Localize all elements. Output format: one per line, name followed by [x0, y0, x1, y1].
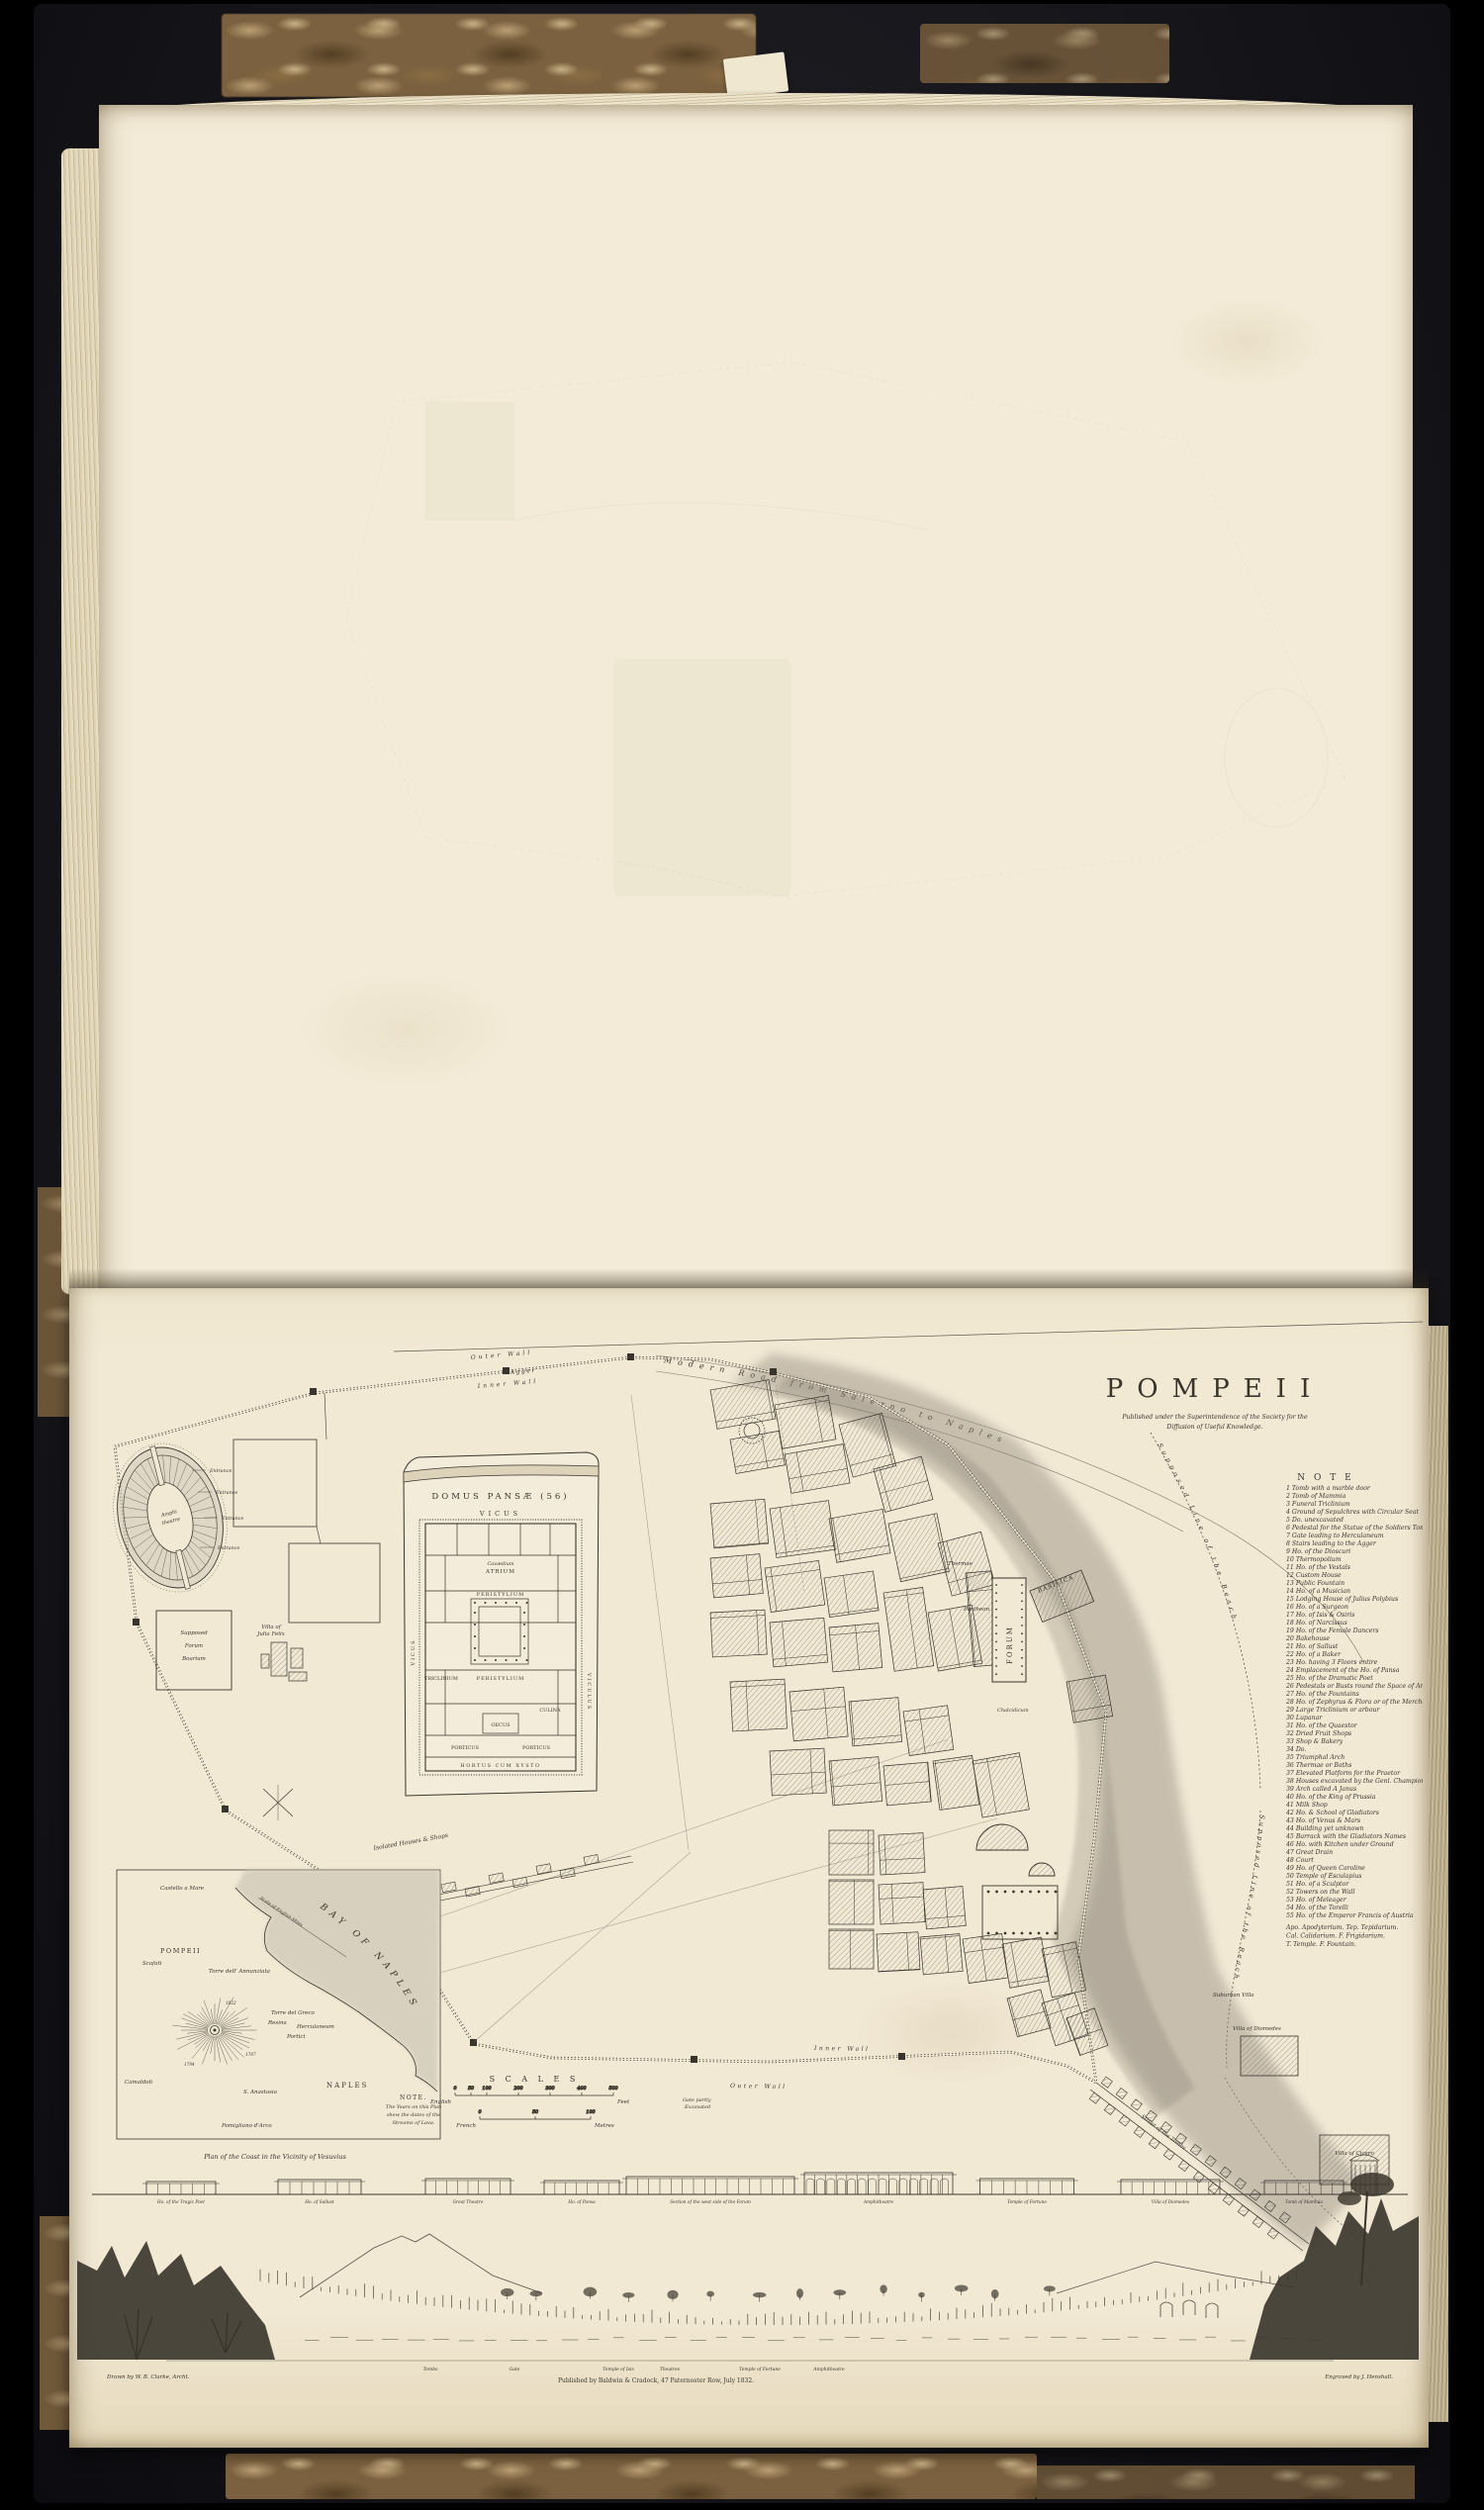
svg-text:Scafati: Scafati	[142, 1961, 162, 1967]
theatres	[976, 1824, 1058, 1939]
svg-text:Feet: Feet	[616, 2099, 630, 2105]
note-item: 4 Ground of Sepulchres with Circular Sea…	[1285, 1509, 1419, 1516]
city-block	[730, 1431, 785, 1473]
svg-text:ATRIUM: ATRIUM	[485, 1569, 515, 1575]
svg-text:Outer Wall: Outer Wall	[471, 1349, 533, 1361]
svg-text:Portici: Portici	[286, 2034, 305, 2040]
photographed-atlas-scene: { "colors":{"background":"#000000","cove…	[0, 0, 1484, 2510]
svg-text:VICUS: VICUS	[411, 1638, 417, 1666]
city-block	[1134, 2126, 1145, 2137]
svg-text:Resina: Resina	[267, 2020, 287, 2026]
note-item: 8 Stairs leading to the Agger	[1286, 1540, 1377, 1547]
credit-left: Drawn by W. B. Clarke, Archt.	[106, 2374, 190, 2380]
svg-text:CULINA: CULINA	[539, 1708, 561, 1714]
scales-block: S C A L E S 050100200300400500 English F…	[429, 2075, 630, 2129]
city-block	[441, 1882, 456, 1893]
entrance-label: Entrance	[209, 1468, 232, 1474]
panorama-label: Tombs	[423, 2367, 439, 2372]
vesuvius-silhouette	[300, 2234, 542, 2297]
city-block	[1007, 1990, 1051, 2037]
note-list: 1 Tomb with a marble door2 Tomb of Mammi…	[1285, 1485, 1423, 1948]
scale-tick: 100	[482, 2086, 491, 2092]
panorama-labels: TombsGateTemple of IsisTheatresTemple of…	[423, 2367, 845, 2372]
note-item: 30 Lupanar	[1286, 1715, 1323, 1721]
panorama-label: Theatres	[660, 2367, 681, 2372]
scale-tick: 400	[576, 2086, 586, 2092]
scale-tick: 0	[478, 2109, 481, 2115]
city-block	[879, 1883, 925, 1924]
city-block	[489, 1873, 504, 1884]
panorama-label: Amphitheatre	[812, 2367, 845, 2372]
svg-text:Torre del Greco: Torre del Greco	[271, 2010, 315, 2016]
note-item: 6 Pedestal for the Statue of the Soldier…	[1286, 1525, 1423, 1532]
note-item: 10 Thermopolium	[1286, 1556, 1342, 1563]
svg-text:S. Anastasia: S. Anastasia	[243, 2090, 277, 2095]
city-block	[829, 1929, 874, 1969]
svg-text:Boarium: Boarium	[181, 1656, 206, 1662]
note-item: 39 Arch called A Janus	[1286, 1786, 1356, 1793]
city-block	[789, 1687, 848, 1741]
entrance-label: Entrance	[217, 1545, 239, 1551]
city-block	[824, 1571, 879, 1618]
svg-text:Forum: Forum	[184, 1643, 203, 1649]
city-block	[1267, 2228, 1278, 2239]
note-item: 1 Tomb with a marble door	[1286, 1485, 1371, 1492]
svg-text:Agger: Agger	[510, 1367, 536, 1376]
plate-subtitle-2: Diffusion of Useful Knowledge.	[1165, 1424, 1262, 1431]
svg-text:Metres: Metres	[594, 2123, 614, 2129]
svg-text:Herculaneum: Herculaneum	[296, 2024, 334, 2030]
svg-text:Chalcidicum: Chalcidicum	[997, 1708, 1029, 1714]
under-pages-right-edge	[1429, 1326, 1448, 2422]
note-item: 7 Gate leading to Herculaneum	[1286, 1533, 1384, 1539]
marbled-board-top-right	[920, 24, 1169, 83]
french-scale-ticks: 050100	[478, 2109, 595, 2119]
note-item: 9 Ho. of the Dioscuri	[1286, 1548, 1350, 1555]
entrance-label: Entrance	[221, 1516, 243, 1522]
note-item: 12 Custom House	[1286, 1572, 1342, 1579]
scale-tick: 0	[453, 2086, 456, 2092]
note-item: 36 Thermae or Baths	[1286, 1762, 1351, 1769]
note-item: 46 Ho. with Kitchen under Ground	[1285, 1841, 1394, 1848]
note-item: 33 Shop & Bakery	[1286, 1738, 1344, 1745]
city-block	[933, 1755, 979, 1810]
city-block	[1208, 2183, 1219, 2193]
note-item: 2 Tomb of Mammia	[1285, 1493, 1346, 1500]
note-item: 35 Triumphal Arch	[1286, 1754, 1345, 1761]
svg-text:Excavated: Excavated	[684, 2104, 710, 2110]
city-block	[1101, 2077, 1112, 2088]
note-item: 15 Lodging House of Julius Polybius	[1286, 1596, 1398, 1603]
note-item: 29 Large Triclinium or arbour	[1285, 1707, 1380, 1714]
note-item: 37 Elevated Platform for the Praetor	[1286, 1770, 1401, 1777]
blank-verso-page	[99, 105, 1413, 1294]
city-block	[1223, 2194, 1234, 2205]
show-through-ghost	[99, 105, 1413, 1294]
note-item: 49 Ho. of Queen Caroline	[1285, 1865, 1365, 1872]
note-item: 53 Ho. of Meleager	[1286, 1897, 1347, 1904]
plate-title: POMPEII	[1106, 1374, 1324, 1404]
note-item: 17 Ho. of Isis & Osiris	[1286, 1612, 1354, 1619]
marbled-board-top	[222, 14, 756, 97]
lava-year: 1767	[245, 2052, 256, 2057]
scale-tick: 500	[608, 2086, 617, 2092]
city-block	[584, 1855, 599, 1866]
note-item: 23 Ho. having 3 Floors entire	[1285, 1659, 1378, 1666]
city-block	[1089, 2092, 1100, 2103]
svg-text:Supposed: Supposed	[180, 1630, 208, 1636]
city-block	[973, 1753, 1029, 1817]
note-item: 47 Great Drain	[1285, 1849, 1333, 1856]
note-abbreviation: T. Temple. F. Fountain.	[1286, 1941, 1356, 1948]
svg-text:French: French	[455, 2123, 476, 2129]
svg-text:TRICLINIUM: TRICLINIUM	[424, 1676, 458, 1682]
note-item: 11 Ho. of the Vestals	[1286, 1564, 1350, 1571]
forum-boarium: Supposed Forum Boarium	[156, 1611, 232, 1690]
scales-header: S C A L E S	[490, 2075, 580, 2084]
city-block	[923, 1887, 966, 1929]
city-block	[765, 1560, 825, 1612]
note-item: 50 Temple of Esculapius	[1286, 1873, 1361, 1880]
note-item: 21 Ho. of Sallust	[1285, 1643, 1339, 1650]
city-block	[710, 1554, 763, 1598]
city-block	[829, 1509, 890, 1562]
note-item: 38 Houses excavated by the Genl. Champio…	[1286, 1778, 1423, 1785]
note-item: 43 Ho. of Venus & Mars	[1285, 1817, 1360, 1824]
svg-text:Isolated Houses & Shops: Isolated Houses & Shops	[372, 1832, 448, 1852]
svg-text:Suburban Villa: Suburban Villa	[1213, 1993, 1254, 1999]
title-block: POMPEII Published under the Superintende…	[1106, 1374, 1324, 1431]
svg-text:VICULUS: VICULUS	[586, 1672, 592, 1711]
city-block	[877, 1932, 920, 1972]
note-item: 14 Ho. of a Musician	[1286, 1588, 1350, 1595]
note-abbreviation: Apo. Apodyterium. Tep. Tepidarium.	[1285, 1924, 1398, 1931]
city-block	[920, 1934, 963, 1975]
note-item: 22 Ho. of a Baker	[1285, 1651, 1342, 1658]
svg-text:Pantheon: Pantheon	[963, 1607, 990, 1613]
city-block	[1163, 2149, 1174, 2160]
city-block	[1067, 1675, 1113, 1722]
svg-text:PERISTYLIUM: PERISTYLIUM	[477, 1676, 524, 1682]
svg-text:Inner Wall: Inner Wall	[477, 1378, 539, 1390]
elevation-caption: Villa of Diomedes	[1152, 2200, 1190, 2205]
elevation-caption: Ho. of Sallust	[304, 2200, 334, 2205]
bay-inset: BAY OF NAPLES Castello a Mare POMPEII Sc…	[117, 1870, 441, 2161]
city-block	[1119, 2115, 1130, 2126]
city-block	[1193, 2172, 1204, 2183]
city-block	[963, 1933, 1008, 1983]
note-item: 48 Court	[1285, 1857, 1314, 1864]
note-item: 41 Milk Shop	[1285, 1802, 1328, 1809]
svg-text:Camaldoli: Camaldoli	[125, 2080, 152, 2086]
beach-line-label-2: Supposed Line of the Beach	[1232, 1814, 1266, 1982]
elevation-caption: Temple of Fortune	[1007, 2200, 1047, 2205]
svg-text:NOTE.: NOTE.	[400, 2094, 427, 2101]
svg-text:Pomigliano d'Arco: Pomigliano d'Arco	[221, 2123, 272, 2129]
note-item: 25 Ho. of the Dramatic Poet	[1285, 1675, 1373, 1682]
city-block	[1238, 2205, 1249, 2216]
note-item: 52 Towers on the Wall	[1286, 1889, 1355, 1896]
domus-pansae-inset: DOMUS PANSÆ (56) VICUS ATRIUM Cavædium P…	[404, 1452, 599, 1796]
elevation-caption: Ho. of the Tragic Poet	[156, 2200, 205, 2205]
city-block	[1131, 2099, 1142, 2110]
city-block	[770, 1618, 828, 1667]
bay-caption: Plan of the Coast in the Vicinity of Ves…	[203, 2153, 346, 2161]
entrance-label: Entrance	[215, 1490, 237, 1496]
note-item: 42 Ho. & School of Gladiators	[1285, 1810, 1379, 1816]
svg-text:PORTICUS: PORTICUS	[522, 1745, 550, 1751]
panorama-label: Temple of Isis	[603, 2367, 634, 2372]
svg-text:FORUM: FORUM	[1006, 1626, 1014, 1664]
svg-text:Streams of Lava.: Streams of Lava.	[393, 2120, 435, 2126]
svg-text:OECUS: OECUS	[491, 1722, 510, 1728]
svg-text:Julia Felix: Julia Felix	[256, 1631, 286, 1637]
city-block	[465, 1887, 480, 1898]
scale-tick: 300	[545, 2086, 554, 2092]
city-block	[770, 1501, 835, 1558]
imprint: Published by Baldwin & Cradock, 47 Pater…	[558, 2377, 754, 2384]
note-item: 40 Ho. of the King of Prussia	[1285, 1794, 1376, 1801]
svg-text:Outer Wall: Outer Wall	[730, 2083, 788, 2091]
city-block	[829, 1757, 882, 1806]
pompeii-map-plate: POMPEII Published under the Superintende…	[77, 1296, 1423, 2444]
note-item: 13 Public Fountain	[1286, 1580, 1345, 1587]
svg-text:Thermae: Thermae	[948, 1561, 974, 1567]
svg-text:DOMUS PANSÆ (56): DOMUS PANSÆ (56)	[431, 1491, 569, 1502]
note-item: 19 Ho. of the Female Dancers	[1286, 1627, 1379, 1634]
city-block	[903, 1706, 954, 1756]
note-abbreviation: Cal. Calidarium. F. Frigidarium.	[1286, 1933, 1385, 1940]
city-block	[829, 1880, 874, 1924]
note-item: 34 Do.	[1286, 1746, 1306, 1753]
city-block	[1252, 2216, 1263, 2227]
scale-tick: 50	[532, 2109, 538, 2115]
villa-julia-felix: Villa of Julia Felix	[256, 1625, 307, 1681]
note-item: 28 Ho. of Zephyrus & Flora or of the Mer…	[1285, 1699, 1423, 1706]
note-item: 3 Funeral Triclinium	[1286, 1501, 1350, 1508]
paper-scrap	[723, 51, 788, 98]
svg-text:Cavædium: Cavædium	[487, 1561, 513, 1567]
panorama-label: Gate	[510, 2367, 520, 2372]
svg-text:shew the dates of the: shew the dates of the	[387, 2112, 440, 2118]
svg-text:Torre dell' Annunziata: Torre dell' Annunziata	[209, 1969, 270, 1975]
note-item: 27 Ho. of the Fountains	[1285, 1691, 1359, 1698]
city-block	[775, 1395, 836, 1448]
note-item: 55 Ho. of the Emperor Francis of Austria	[1286, 1912, 1414, 1919]
marbled-board-bottom	[226, 2454, 1037, 2499]
city-block	[1178, 2160, 1189, 2171]
note-item: 32 Dried Fruit Shops	[1286, 1730, 1351, 1737]
elevation-caption: Great Theatre	[453, 2200, 484, 2205]
scale-tick: 100	[586, 2109, 595, 2115]
elevation-facade	[626, 2177, 794, 2194]
city-block	[512, 1877, 527, 1888]
city-block	[1002, 1937, 1049, 1988]
marbled-board-bottom-right	[1037, 2465, 1415, 2499]
city-block	[1149, 2138, 1159, 2149]
lava-year: 1794	[184, 2062, 195, 2067]
city-block	[829, 1830, 874, 1875]
foreground-left	[77, 2241, 275, 2360]
note-header: N O T E	[1297, 1473, 1353, 1483]
note-item: 24 Emplacement of the Ho. of Pansa	[1285, 1667, 1400, 1674]
note-block: N O T E 1 Tomb with a marble door2 Tomb …	[1285, 1473, 1423, 1948]
svg-text:VICUS: VICUS	[479, 1510, 521, 1518]
svg-text:Villa of: Villa of	[261, 1625, 281, 1630]
svg-text:PERISTYLIUM: PERISTYLIUM	[477, 1592, 524, 1598]
note-item: 44 Building yet unknown	[1285, 1825, 1364, 1832]
city-block	[849, 1698, 902, 1746]
city-block	[883, 1587, 934, 1671]
city-block	[883, 1762, 931, 1806]
credit-right: Engraved by J. Henshall.	[1324, 2374, 1393, 2380]
page-stack-left-edge	[61, 148, 103, 1294]
elevation-caption: Section of the west side of the Forum	[670, 2200, 751, 2205]
note-item: 31 Ho. of the Quaestor	[1286, 1722, 1358, 1729]
svg-text:HORTUS CUM XYSTO: HORTUS CUM XYSTO	[460, 1763, 540, 1769]
svg-text:POMPEII: POMPEII	[160, 1947, 201, 1955]
elevation-captions: Ho. of the Tragic PoetHo. of SallustGrea…	[156, 2200, 1323, 2205]
svg-text:Gate partly: Gate partly	[683, 2097, 711, 2103]
note-item: 20 Bakehouse	[1285, 1635, 1330, 1642]
elevation-caption: Amphitheatre	[863, 2200, 893, 2205]
note-item: 51 Ho. of a Sculptor	[1286, 1881, 1349, 1888]
scale-tick: 200	[512, 2086, 522, 2092]
svg-text:Villa of Diomedes: Villa of Diomedes	[1233, 2026, 1281, 2032]
elevation-caption: Tomb of Mammia	[1285, 2200, 1323, 2205]
survey-cross-icon	[263, 1785, 293, 1820]
svg-text:English: English	[429, 2099, 451, 2105]
city-block	[770, 1748, 826, 1796]
lava-year: 1822	[226, 2000, 236, 2005]
panorama-label: Temple of Fortune	[739, 2367, 781, 2372]
city-block	[710, 1380, 776, 1430]
note-item: 45 Barrack with the Gladiators Names	[1285, 1833, 1406, 1840]
note-item: 16 Ho. of a Surgeon	[1286, 1604, 1348, 1611]
english-scale-ticks: 050100200300400500	[453, 2086, 617, 2095]
city-block	[710, 1499, 769, 1548]
amphitheatre: Amphi theatre	[98, 1432, 241, 1605]
beach-line-label-1: Supposed Line of the Beach	[1156, 1441, 1239, 1624]
svg-text:NAPLES: NAPLES	[326, 2082, 368, 2090]
svg-text:Villa of Cicero: Villa of Cicero	[1335, 2151, 1374, 2157]
svg-text:Castello a Mare: Castello a Mare	[160, 1886, 205, 1892]
note-item: 26 Pedestals or Busts round the Space of…	[1285, 1683, 1423, 1690]
city-block	[785, 1444, 850, 1494]
svg-text:PORTICUS: PORTICUS	[451, 1745, 479, 1751]
scale-tick: 50	[468, 2086, 474, 2092]
note-item: 54 Ho. of the Torelli	[1286, 1905, 1348, 1911]
city-block	[1116, 2088, 1127, 2098]
svg-text:Inner Wall: Inner Wall	[813, 2045, 871, 2053]
note-item: 5 Do. unexcavated	[1286, 1517, 1344, 1524]
north-plots	[233, 1393, 380, 1623]
plate-subtitle-1: Published under the Superintendence of t…	[1121, 1414, 1308, 1421]
city-block	[1104, 2103, 1115, 2114]
elevation-caption: Ho. of Pansa	[567, 2200, 596, 2205]
